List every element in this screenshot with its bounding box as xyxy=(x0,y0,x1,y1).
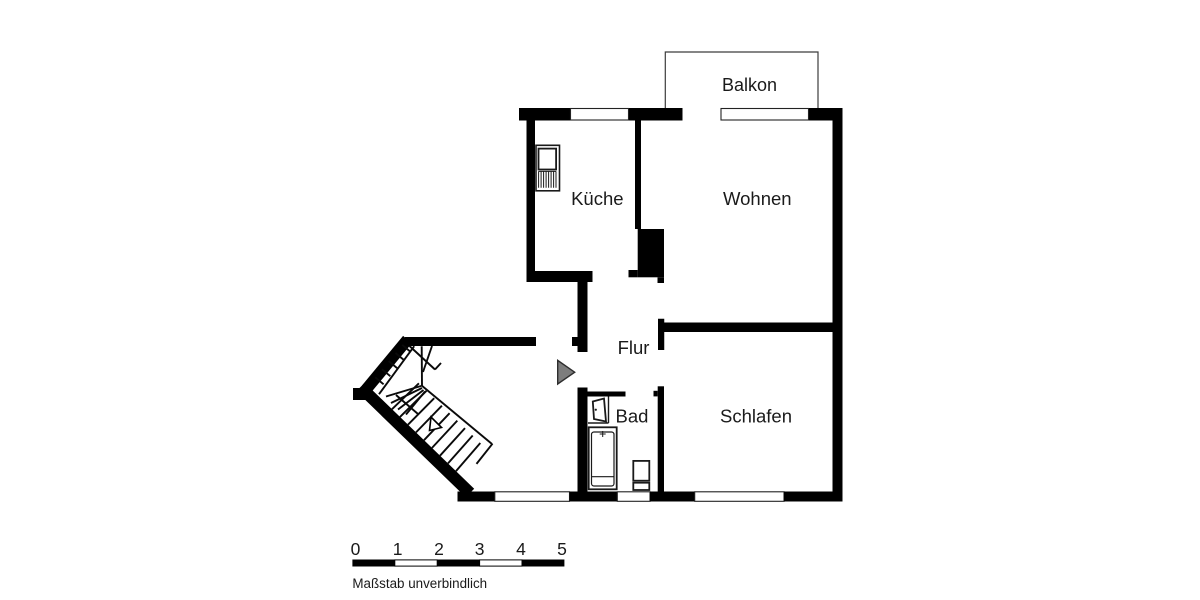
svg-text:Balkon: Balkon xyxy=(722,75,777,95)
svg-text:Wohnen: Wohnen xyxy=(723,188,792,209)
svg-text:4: 4 xyxy=(516,539,526,559)
svg-text:Bad: Bad xyxy=(616,405,649,426)
svg-text:Flur: Flur xyxy=(618,337,650,358)
svg-text:5: 5 xyxy=(557,539,567,559)
svg-text:Küche: Küche xyxy=(571,188,623,209)
svg-text:Schlafen: Schlafen xyxy=(720,405,792,426)
svg-text:3: 3 xyxy=(475,539,485,559)
svg-text:Maßstab unverbindlich: Maßstab unverbindlich xyxy=(352,576,487,591)
svg-text:2: 2 xyxy=(434,539,444,559)
svg-text:1: 1 xyxy=(393,539,403,559)
svg-text:0: 0 xyxy=(351,539,361,559)
